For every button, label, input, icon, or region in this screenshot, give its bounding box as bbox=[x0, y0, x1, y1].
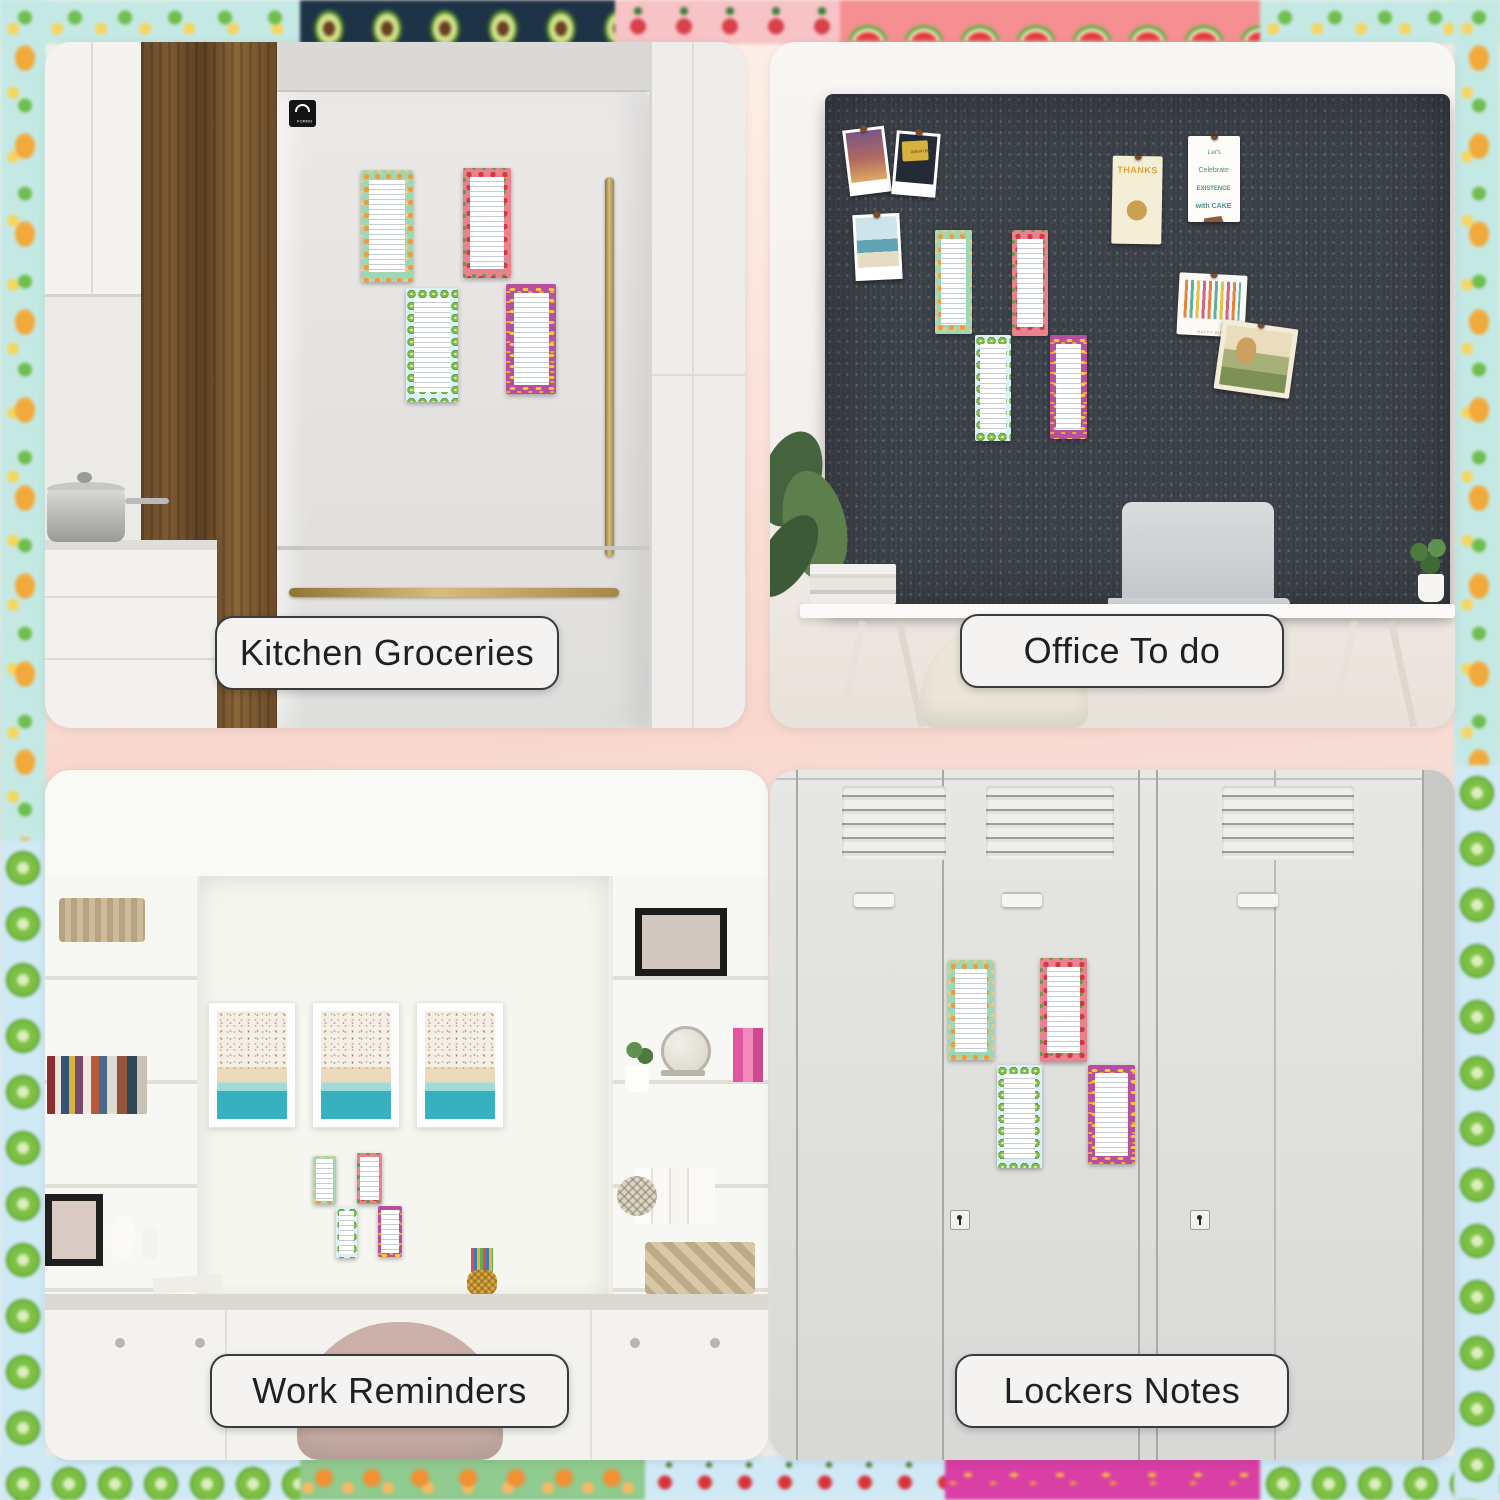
cabinet-door-seam bbox=[91, 42, 93, 294]
pineapple-pattern-icon bbox=[0, 0, 46, 840]
caption-text: Kitchen Groceries bbox=[240, 632, 535, 674]
quadrant-work: Work Reminders bbox=[45, 770, 768, 1460]
quadrant-office: Saturn Bar THANKS Let's Celebrate EXISTE… bbox=[770, 42, 1455, 728]
push-pin-icon bbox=[1135, 156, 1142, 161]
drawer-knob bbox=[710, 1338, 720, 1348]
beach-art-print bbox=[208, 1002, 296, 1128]
white-vase bbox=[141, 1226, 159, 1260]
drawer-seam bbox=[45, 658, 217, 660]
caption-text: Lockers Notes bbox=[1004, 1370, 1241, 1412]
notepad-paper bbox=[1056, 344, 1082, 430]
locker-top-seam bbox=[770, 778, 1455, 780]
candles-illustration-icon bbox=[1183, 280, 1241, 321]
beach-art-print bbox=[416, 1002, 504, 1128]
kiwi-pattern-icon bbox=[1454, 765, 1500, 1500]
notepad-orange bbox=[948, 960, 994, 1060]
notepad-paper bbox=[1095, 1073, 1128, 1155]
pink-book-stack bbox=[733, 1028, 763, 1082]
notepad-paper bbox=[941, 239, 967, 325]
potted-plant-leaves-icon bbox=[1406, 536, 1450, 576]
polaroid-palm-sunset bbox=[842, 126, 892, 197]
notepad-banana bbox=[378, 1206, 402, 1257]
locker-handle bbox=[1238, 892, 1278, 907]
notepad-watermelon bbox=[357, 1153, 382, 1204]
mermaid-figure-icon bbox=[1234, 336, 1257, 365]
right-cabinet-panel bbox=[649, 42, 745, 728]
notepad-kiwi bbox=[406, 288, 458, 402]
notepad-banana bbox=[1088, 1065, 1135, 1164]
photo bbox=[52, 1201, 96, 1259]
cooking-pot bbox=[47, 490, 125, 542]
cake-card-line: with CAKE bbox=[1196, 203, 1232, 211]
colored-pencils-icon bbox=[471, 1248, 493, 1272]
drawer-seam bbox=[45, 596, 217, 598]
caption-text: Office To do bbox=[1024, 630, 1221, 672]
polaroid-beach bbox=[852, 213, 902, 281]
beach-aerial-art bbox=[217, 1011, 287, 1119]
fruit-border-top bbox=[0, 0, 1500, 44]
notepad-orange bbox=[935, 230, 972, 334]
desk-counter bbox=[45, 1294, 768, 1310]
book-stack bbox=[810, 564, 896, 604]
locker-lock bbox=[950, 1210, 970, 1230]
pot-handle bbox=[125, 498, 169, 504]
leg-bar bbox=[1388, 620, 1417, 727]
panel-seam bbox=[652, 374, 745, 376]
banana-pattern-icon bbox=[945, 1456, 1260, 1500]
lattice-sphere-decor-icon bbox=[617, 1176, 657, 1216]
locker-handle bbox=[854, 892, 894, 907]
mermaid-art bbox=[1219, 325, 1293, 394]
cake-card-line: Let's bbox=[1207, 149, 1220, 156]
notepad-watermelon bbox=[1040, 958, 1087, 1062]
notepad-kiwi bbox=[336, 1207, 357, 1258]
forno-brand-badge: FORNO bbox=[289, 100, 316, 127]
notepad-paper bbox=[514, 293, 549, 384]
drawer-knob bbox=[630, 1338, 640, 1348]
fridge-handle-vertical bbox=[605, 177, 614, 557]
keyhole-stem bbox=[959, 1219, 961, 1225]
desk-trestle-leg bbox=[838, 620, 924, 728]
drawer-knob bbox=[115, 1338, 125, 1348]
fruit-border-right bbox=[1454, 0, 1500, 1500]
thanks-card-text: THANKS bbox=[1112, 165, 1162, 176]
caption-work-reminders: Work Reminders bbox=[210, 1354, 569, 1428]
notepad-paper bbox=[980, 344, 1005, 432]
plant-pot bbox=[1418, 574, 1444, 602]
locker-vent bbox=[842, 786, 946, 860]
pot-lid-knob bbox=[77, 472, 92, 483]
quadrant-lockers: Lockers Notes bbox=[770, 770, 1455, 1460]
notepad-paper bbox=[360, 1157, 379, 1201]
laptop-screen bbox=[1122, 502, 1274, 604]
notepad-paper bbox=[1004, 1074, 1036, 1160]
beach-photo bbox=[855, 216, 899, 268]
wicker-basket bbox=[59, 898, 145, 942]
desk-trestle-leg bbox=[1330, 620, 1416, 728]
notepad-paper bbox=[316, 1159, 334, 1200]
freezer-handle bbox=[289, 588, 619, 597]
locker-vent bbox=[986, 786, 1114, 860]
notepad-paper bbox=[414, 298, 450, 393]
notepad-orange bbox=[361, 170, 413, 282]
orange-pattern-icon bbox=[300, 1456, 645, 1500]
locker-lock bbox=[1190, 1210, 1210, 1230]
photo bbox=[642, 915, 720, 969]
watermelon-pattern-icon bbox=[840, 0, 1260, 44]
cake-card-line: EXISTENCE bbox=[1197, 185, 1231, 192]
forno-logo-icon bbox=[295, 104, 310, 112]
notepad-orange bbox=[313, 1156, 336, 1204]
caption-office-to-do: Office To do bbox=[960, 614, 1284, 688]
cherry-pattern-icon bbox=[645, 1456, 945, 1500]
notepad-paper bbox=[369, 180, 405, 273]
caption-text: Work Reminders bbox=[252, 1370, 526, 1412]
polaroid-saturn-bar: Saturn Bar bbox=[891, 130, 940, 198]
mermaid-card bbox=[1213, 319, 1298, 399]
drawer-knob bbox=[195, 1338, 205, 1348]
locker-door-seam bbox=[796, 770, 798, 1460]
beach-aerial-art bbox=[321, 1011, 391, 1119]
saturn-bar-sign-text: Saturn Bar bbox=[911, 148, 932, 154]
photo-frame-black bbox=[635, 908, 727, 976]
push-pin-icon bbox=[873, 211, 880, 218]
plant-pot bbox=[625, 1066, 649, 1092]
book-row bbox=[47, 1056, 147, 1114]
product-collage: FORNO Kitchen Groceries Saturn Bar bbox=[0, 0, 1500, 1500]
notepad-paper bbox=[1017, 239, 1042, 327]
wicker-basket bbox=[645, 1242, 755, 1294]
notepad-banana bbox=[1050, 335, 1087, 439]
saturn-bar-photo: Saturn Bar bbox=[895, 133, 937, 184]
upper-soffit bbox=[45, 770, 768, 878]
leg-bar bbox=[837, 620, 866, 727]
palm-sunset-photo bbox=[845, 129, 887, 183]
glass-sphere-decor-icon bbox=[661, 1026, 711, 1076]
thanks-card-illustration-icon bbox=[1124, 190, 1151, 224]
notepad-paper bbox=[1047, 967, 1080, 1053]
cake-card-line: Celebrate bbox=[1199, 167, 1229, 175]
notepad-watermelon bbox=[1012, 230, 1048, 336]
quadrant-kitchen: FORNO Kitchen Groceries bbox=[45, 42, 745, 728]
lower-drawers bbox=[45, 550, 217, 728]
kiwi-pattern-icon bbox=[0, 840, 46, 1500]
notepad-banana bbox=[506, 284, 556, 394]
pineapple-pattern-icon bbox=[1454, 0, 1500, 765]
keyhole-stem bbox=[1199, 1219, 1201, 1225]
cake-slice-icon bbox=[1202, 216, 1226, 222]
beach-aerial-art bbox=[425, 1011, 495, 1119]
freezer-seam bbox=[277, 546, 649, 550]
notepad-kiwi bbox=[997, 1065, 1042, 1168]
caption-lockers-notes: Lockers Notes bbox=[955, 1354, 1289, 1428]
panel-seam bbox=[692, 42, 694, 728]
notepad-kiwi bbox=[975, 335, 1011, 441]
adjacent-locker-panel bbox=[1422, 770, 1455, 1460]
notepad-paper bbox=[955, 969, 987, 1052]
sphere-stand bbox=[661, 1070, 705, 1076]
strawberry-pattern-icon bbox=[615, 0, 840, 44]
locker-door-seam bbox=[942, 770, 944, 1460]
locker-vent bbox=[1222, 786, 1354, 860]
push-pin-icon bbox=[1211, 136, 1218, 140]
thanks-card: THANKS bbox=[1111, 156, 1163, 245]
leg-bar bbox=[1329, 620, 1358, 727]
notepad-paper bbox=[339, 1211, 355, 1255]
forno-brand-text: FORNO bbox=[297, 119, 313, 124]
notepad-paper bbox=[470, 177, 504, 268]
upper-cabinet bbox=[45, 42, 143, 297]
pineapple-pencil-cup-icon bbox=[467, 1270, 497, 1296]
saturn-bar-sign: Saturn Bar bbox=[902, 140, 929, 161]
cabinet-seam bbox=[590, 1310, 592, 1460]
locker-handle bbox=[1002, 892, 1042, 907]
fruit-border-bottom bbox=[0, 1456, 1500, 1500]
fruit-border-left bbox=[0, 0, 46, 1500]
photo-frame bbox=[45, 1194, 103, 1266]
existence-cake-card: Let's Celebrate EXISTENCE with CAKE bbox=[1188, 136, 1240, 222]
white-vase bbox=[111, 1216, 135, 1260]
beach-art-print bbox=[312, 1002, 400, 1128]
notepad-paper bbox=[381, 1210, 399, 1254]
shelf-plant-icon bbox=[620, 1038, 656, 1068]
cabinet-above-fridge bbox=[277, 42, 649, 92]
notepad-watermelon bbox=[463, 168, 511, 278]
caption-kitchen-groceries: Kitchen Groceries bbox=[215, 616, 559, 690]
avocado-pattern-icon bbox=[300, 0, 615, 44]
